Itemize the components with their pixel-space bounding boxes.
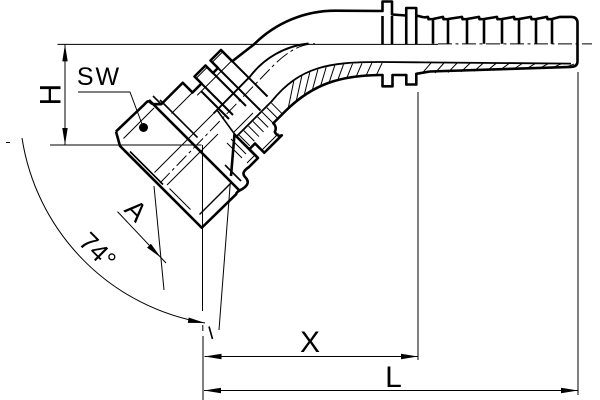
svg-text:X: X	[300, 326, 320, 359]
svg-text:SW: SW	[77, 63, 121, 91]
svg-text:L: L	[385, 361, 402, 394]
svg-text:H: H	[35, 84, 68, 106]
